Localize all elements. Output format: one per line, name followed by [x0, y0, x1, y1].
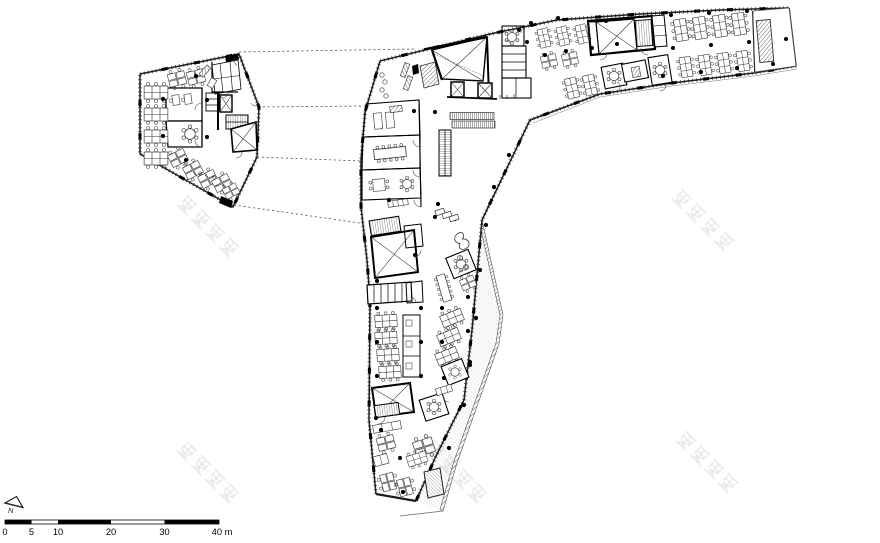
- svg-text:30: 30: [159, 527, 169, 537]
- svg-text:10: 10: [53, 527, 63, 537]
- svg-text:20: 20: [106, 527, 116, 537]
- svg-text:N: N: [8, 506, 14, 515]
- svg-text:5: 5: [29, 527, 34, 537]
- svg-text:40 m: 40 m: [212, 527, 233, 537]
- svg-text:0: 0: [2, 527, 7, 537]
